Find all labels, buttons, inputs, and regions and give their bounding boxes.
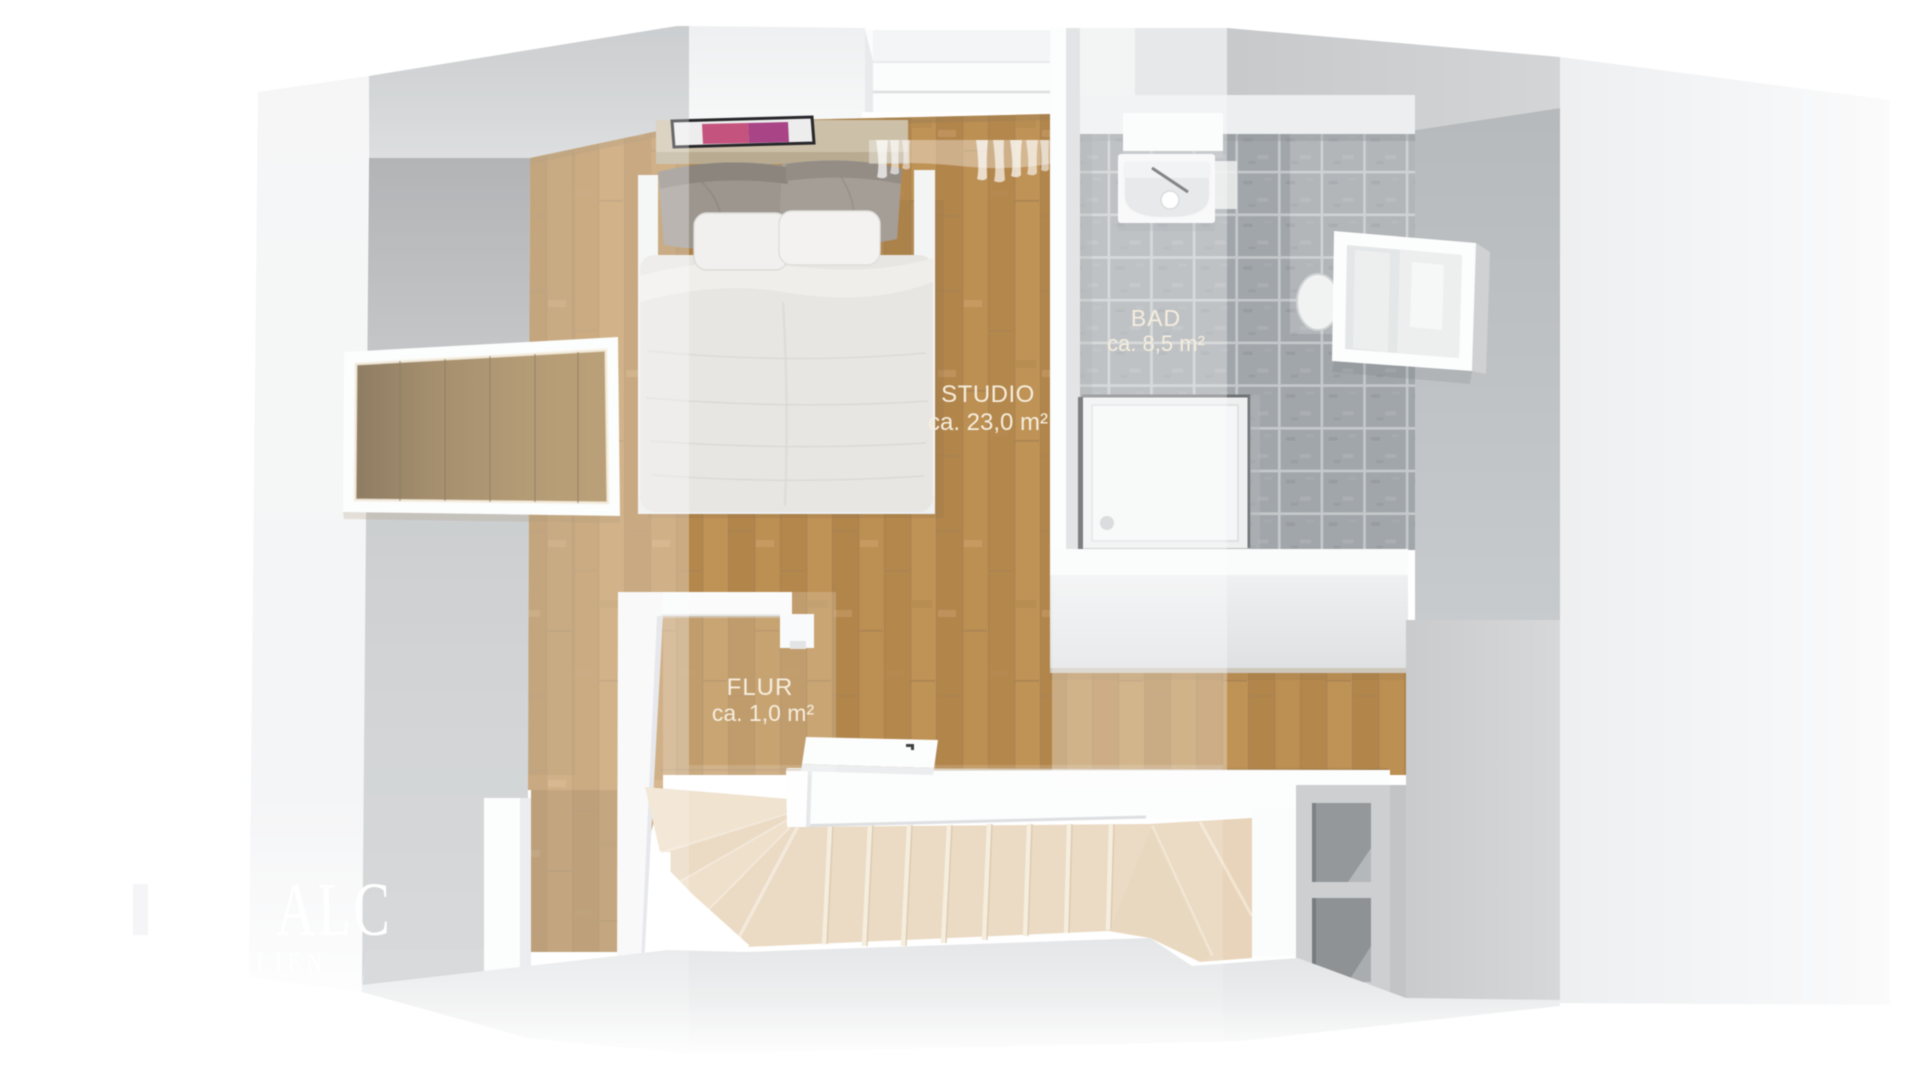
svg-text:IMMOBILIEN: IMMOBILIEN <box>140 949 328 977</box>
svg-text:BAD: BAD <box>1131 305 1181 331</box>
svg-text:ALC: ALC <box>276 868 392 952</box>
svg-text:STUDIO: STUDIO <box>941 381 1035 408</box>
svg-text:ca. 23,0 m²: ca. 23,0 m² <box>928 409 1048 436</box>
svg-text:FLUR: FLUR <box>727 674 794 701</box>
svg-text:ca. 1,0 m²: ca. 1,0 m² <box>712 700 815 726</box>
svg-text:ca. 8,5 m²: ca. 8,5 m² <box>1107 331 1205 356</box>
